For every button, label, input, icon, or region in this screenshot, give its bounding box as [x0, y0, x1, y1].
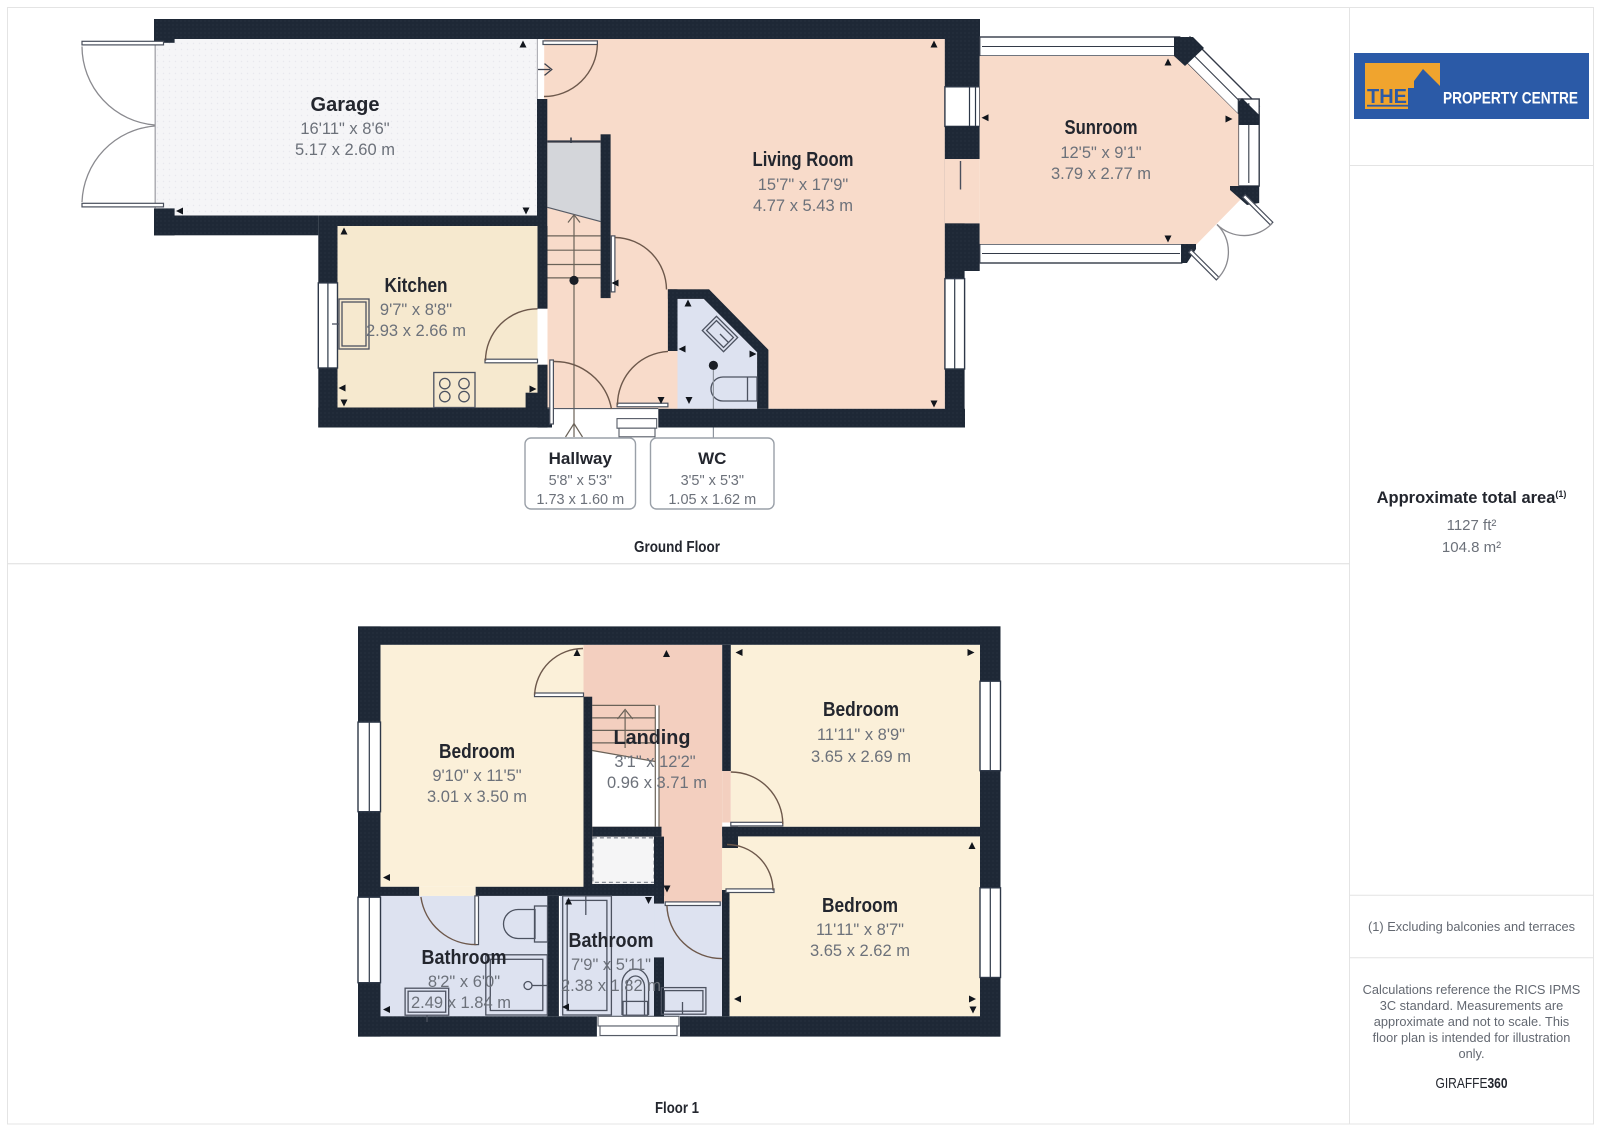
svg-text:9'10" x 11'5": 9'10" x 11'5" [432, 767, 521, 785]
svg-text:11'11" x 8'9": 11'11" x 8'9" [817, 726, 905, 744]
svg-text:3.65 x 2.62 m: 3.65 x 2.62 m [810, 942, 910, 960]
svg-text:104.8 m²: 104.8 m² [1442, 539, 1501, 556]
svg-text:2.38 x 1.82 m: 2.38 x 1.82 m [561, 977, 661, 995]
svg-text:GIRAFFE360: GIRAFFE360 [1436, 1075, 1508, 1092]
svg-text:floor plan is intended for ill: floor plan is intended for illustration [1373, 1030, 1571, 1045]
svg-text:1.05 x 1.62 m: 1.05 x 1.62 m [668, 492, 756, 508]
svg-text:only.: only. [1458, 1046, 1484, 1061]
svg-text:4.77 x 5.43 m: 4.77 x 5.43 m [753, 197, 853, 215]
svg-text:12'5" x 9'1": 12'5" x 9'1" [1060, 144, 1141, 162]
svg-text:2.93 x 2.66 m: 2.93 x 2.66 m [366, 322, 466, 340]
svg-text:15'7" x 17'9": 15'7" x 17'9" [758, 176, 849, 194]
svg-text:Approximate total area(1): Approximate total area(1) [1377, 489, 1567, 507]
svg-text:16'11" x 8'6": 16'11" x 8'6" [300, 120, 389, 138]
svg-text:5'8" x 5'3": 5'8" x 5'3" [549, 473, 612, 489]
svg-text:Calculations reference the RIC: Calculations reference the RICS IPMS [1363, 982, 1581, 997]
svg-text:(1) Excluding balconies and te: (1) Excluding balconies and terraces [1368, 919, 1575, 934]
svg-text:8'2" x 6'0": 8'2" x 6'0" [428, 973, 500, 991]
svg-text:Bedroom: Bedroom [439, 741, 515, 763]
svg-text:Bedroom: Bedroom [823, 699, 899, 721]
svg-text:1127 ft²: 1127 ft² [1447, 517, 1497, 534]
svg-text:Ground Floor: Ground Floor [634, 539, 720, 556]
svg-text:Bedroom: Bedroom [822, 895, 898, 917]
svg-text:1.73 x 1.60 m: 1.73 x 1.60 m [536, 492, 624, 508]
svg-text:PROPERTY CENTRE: PROPERTY CENTRE [1443, 89, 1578, 108]
svg-text:Floor 1: Floor 1 [655, 1100, 699, 1117]
svg-text:3.01 x 3.50 m: 3.01 x 3.50 m [427, 788, 527, 806]
svg-text:Bathroom: Bathroom [422, 947, 507, 969]
svg-text:Landing: Landing [614, 727, 691, 749]
svg-text:11'11" x 8'7": 11'11" x 8'7" [816, 921, 904, 939]
svg-text:3.65 x 2.69 m: 3.65 x 2.69 m [811, 748, 911, 766]
svg-text:3.79 x 2.77 m: 3.79 x 2.77 m [1051, 165, 1151, 183]
svg-text:Hallway: Hallway [549, 449, 613, 468]
svg-text:0.96 x 3.71 m: 0.96 x 3.71 m [607, 774, 707, 792]
svg-text:5.17 x 2.60 m: 5.17 x 2.60 m [295, 141, 395, 159]
svg-text:3'1" x 12'2": 3'1" x 12'2" [614, 753, 695, 771]
svg-text:Garage: Garage [311, 94, 380, 116]
svg-text:Living Room: Living Room [753, 149, 854, 171]
svg-text:9'7" x 8'8": 9'7" x 8'8" [380, 301, 452, 319]
svg-text:approximate and not to scale.: approximate and not to scale. This [1374, 1014, 1569, 1029]
svg-text:Sunroom: Sunroom [1065, 117, 1138, 139]
svg-text:7'9" x 5'11": 7'9" x 5'11" [571, 956, 651, 974]
svg-text:Bathroom: Bathroom [569, 930, 654, 952]
svg-text:THE: THE [1367, 86, 1407, 108]
svg-text:3'5" x 5'3": 3'5" x 5'3" [681, 473, 744, 489]
svg-text:2.49 x 1.84 m: 2.49 x 1.84 m [411, 994, 511, 1012]
svg-text:Kitchen: Kitchen [385, 275, 448, 297]
svg-text:3C standard. Measurements are: 3C standard. Measurements are [1380, 998, 1564, 1013]
svg-text:WC: WC [698, 449, 726, 468]
